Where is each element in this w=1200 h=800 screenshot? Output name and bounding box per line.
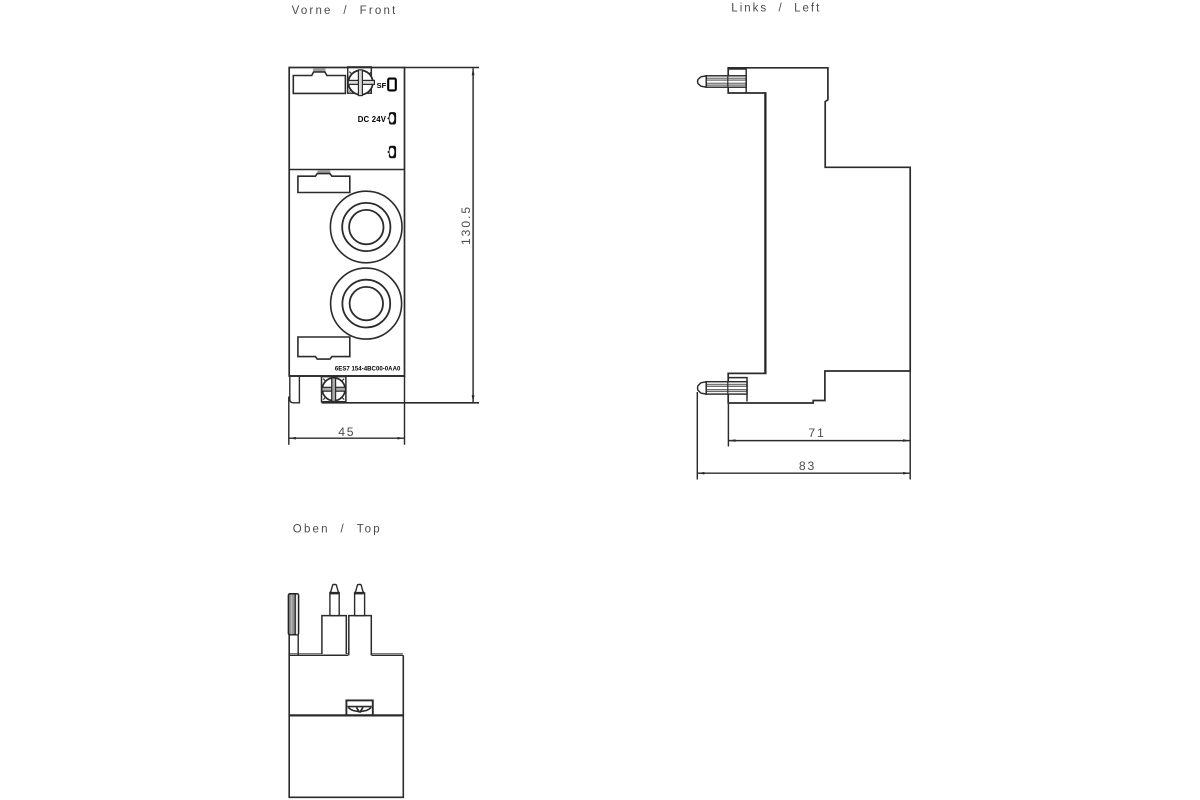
svg-text:Links / Left: Links / Left bbox=[731, 2, 821, 14]
svg-text:130.5: 130.5 bbox=[459, 205, 473, 245]
svg-text:DC 24V: DC 24V bbox=[358, 115, 387, 124]
svg-text:71: 71 bbox=[808, 426, 825, 440]
svg-text:Oben / Top: Oben / Top bbox=[293, 523, 382, 535]
svg-text:SF: SF bbox=[377, 81, 387, 90]
svg-text:83: 83 bbox=[799, 459, 816, 473]
svg-text:45: 45 bbox=[338, 425, 355, 439]
svg-text:6ES7 154-4BC00-0AA0: 6ES7 154-4BC00-0AA0 bbox=[335, 365, 401, 372]
svg-text:Vorne / Front: Vorne / Front bbox=[292, 5, 398, 17]
